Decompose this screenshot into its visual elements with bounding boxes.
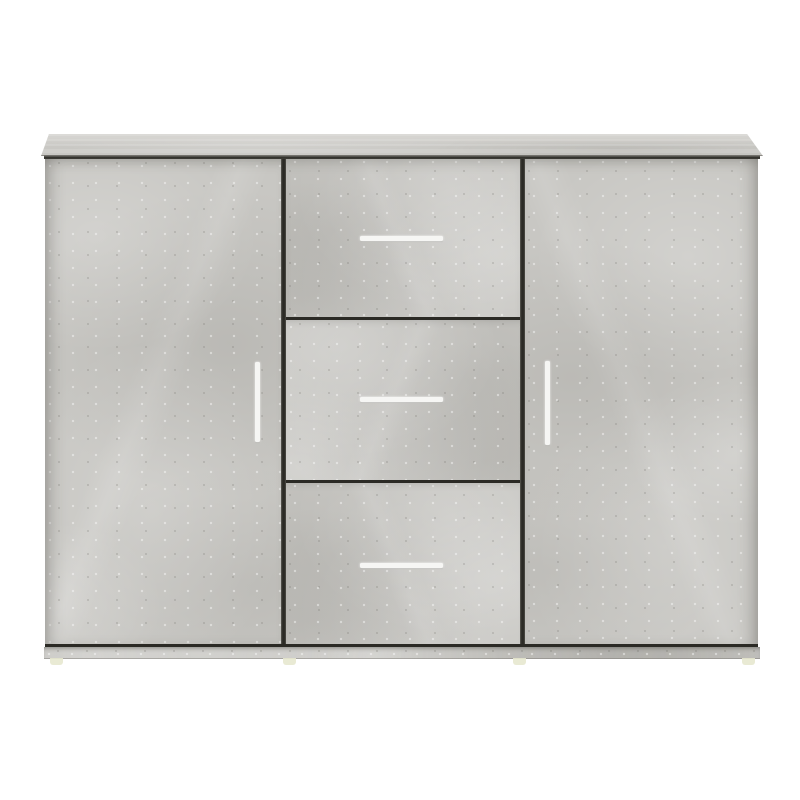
right-door-panel (525, 159, 758, 644)
drawer-middle-handle (360, 397, 443, 402)
drawer-top-handle (360, 236, 443, 241)
cabinet-foot-4 (742, 658, 755, 665)
cabinet-foot-1 (50, 658, 63, 665)
cabinet-foot-2 (283, 658, 296, 665)
left-door-panel (45, 159, 281, 644)
cabinet-foot-3 (513, 658, 526, 665)
right-door-handle (545, 361, 550, 445)
cabinet-base-plinth (44, 647, 760, 659)
product-photo-canvas (0, 0, 800, 800)
cabinet-top-panel (41, 134, 763, 156)
drawer-bottom-handle (360, 563, 443, 568)
left-door-handle (255, 362, 260, 442)
